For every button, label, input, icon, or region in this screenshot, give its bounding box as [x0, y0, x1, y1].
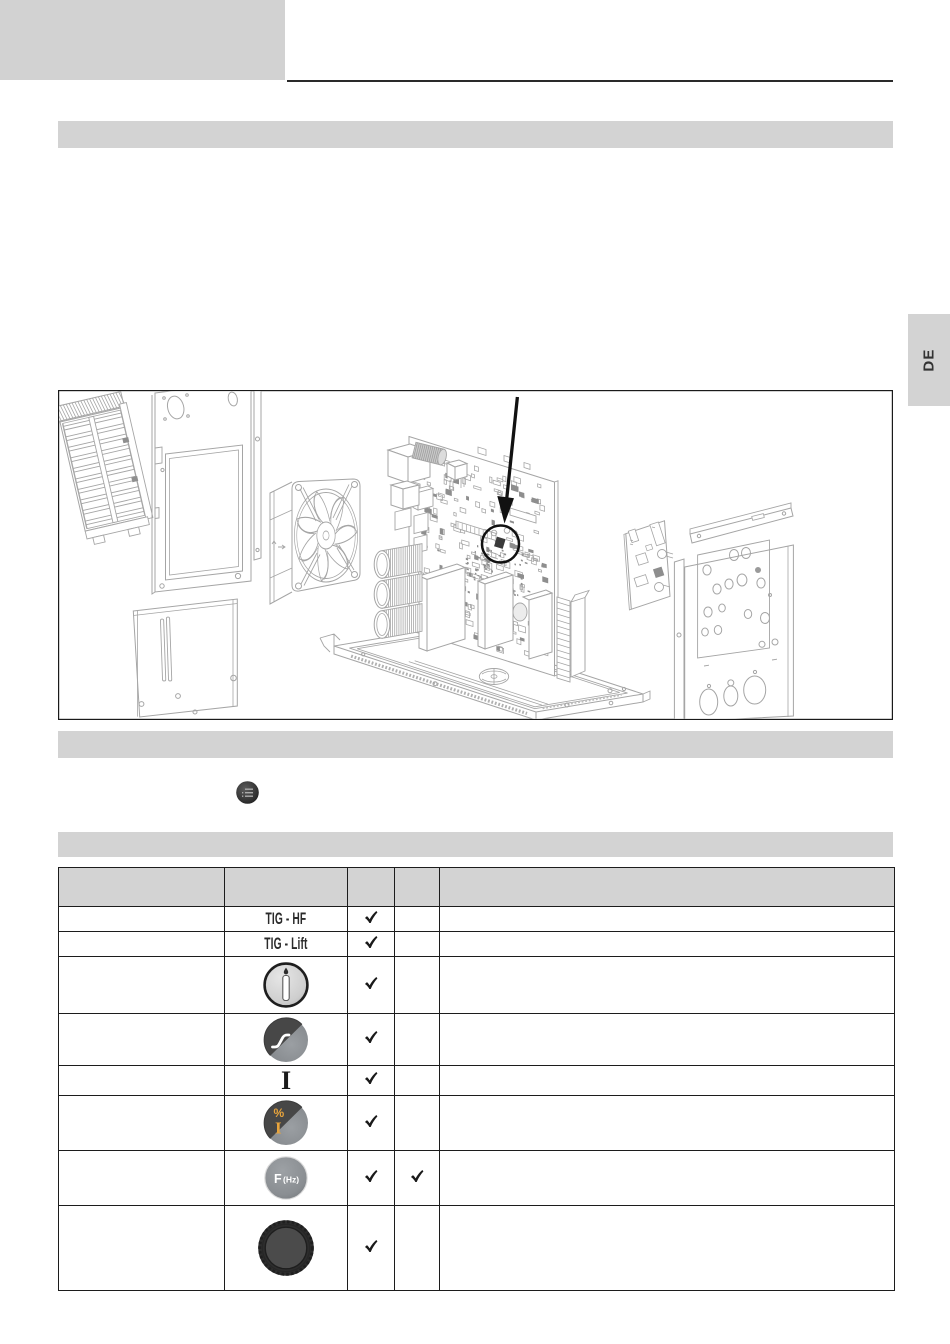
svg-text:F: F: [274, 1172, 282, 1186]
svg-text:I: I: [275, 1119, 282, 1138]
svg-text:(Hz): (Hz): [283, 1175, 299, 1185]
